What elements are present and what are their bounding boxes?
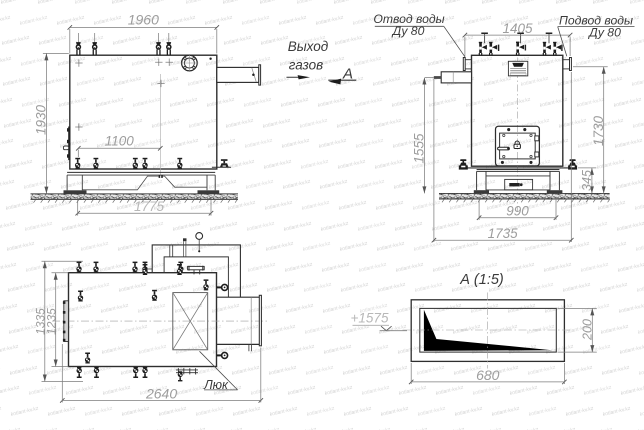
svg-text:kotlant-kv.kz: kotlant-kv.kz bbox=[263, 159, 292, 171]
svg-text:kotlant-kv.kz: kotlant-kv.kz bbox=[191, 241, 220, 253]
svg-text:kotlant-kv.kz: kotlant-kv.kz bbox=[225, 118, 254, 130]
svg-text:kotlant-kv.kz: kotlant-kv.kz bbox=[617, 262, 644, 274]
svg-text:kotlant-kv.kz: kotlant-kv.kz bbox=[594, 76, 623, 88]
svg-text:kotlant-kv.kz: kotlant-kv.kz bbox=[249, 344, 278, 356]
svg-text:kotlant-kv.kz: kotlant-kv.kz bbox=[518, 0, 547, 6]
svg-text:kotlant-kv.kz: kotlant-kv.kz bbox=[333, 0, 362, 6]
svg-text:kotlant-kv.kz: kotlant-kv.kz bbox=[506, 262, 535, 274]
svg-text:kotlant-kv.kz: kotlant-kv.kz bbox=[169, 97, 198, 109]
svg-text:kotlant-kv.kz: kotlant-kv.kz bbox=[300, 159, 329, 171]
svg-text:kotlant-kv.kz: kotlant-kv.kz bbox=[546, 385, 575, 397]
svg-text:kotlant-kv.kz: kotlant-kv.kz bbox=[491, 406, 520, 418]
svg-text:kotlant-kv.kz: kotlant-kv.kz bbox=[410, 118, 439, 130]
svg-text:kotlant-kv.kz: kotlant-kv.kz bbox=[260, 35, 289, 47]
svg-text:kotlant-kv.kz: kotlant-kv.kz bbox=[228, 241, 257, 253]
svg-text:kotlant-kv.kz: kotlant-kv.kz bbox=[187, 76, 216, 88]
svg-text:1930: 1930 bbox=[34, 104, 49, 135]
svg-text:kotlant-kv.kz: kotlant-kv.kz bbox=[520, 76, 549, 88]
svg-text:kotlant-kv.kz: kotlant-kv.kz bbox=[0, 138, 15, 150]
svg-text:kotlant-kv.kz: kotlant-kv.kz bbox=[353, 56, 382, 68]
svg-text:kotlant-kv.kz: kotlant-kv.kz bbox=[636, 282, 644, 294]
svg-text:kotlant-kv.kz: kotlant-kv.kz bbox=[113, 76, 142, 88]
svg-text:kotlant-kv.kz: kotlant-kv.kz bbox=[0, 97, 14, 109]
svg-text:kotlant-kv.kz: kotlant-kv.kz bbox=[268, 365, 297, 377]
svg-text:kotlant-kv.kz: kotlant-kv.kz bbox=[242, 56, 271, 68]
svg-text:kotlant-kv.kz: kotlant-kv.kz bbox=[285, 303, 314, 315]
svg-text:kotlant-kv.kz: kotlant-kv.kz bbox=[0, 344, 20, 356]
svg-text:kotlant-kv.kz: kotlant-kv.kz bbox=[243, 97, 272, 109]
svg-text:kotlant-kv.kz: kotlant-kv.kz bbox=[315, 15, 344, 27]
svg-text:kotlant-kv.kz: kotlant-kv.kz bbox=[299, 118, 328, 130]
svg-text:kotlant-kv.kz: kotlant-kv.kz bbox=[24, 221, 53, 233]
svg-text:kotlant-kv.kz: kotlant-kv.kz bbox=[619, 344, 644, 356]
svg-text:kotlant-kv.kz: kotlant-kv.kz bbox=[281, 138, 310, 150]
svg-text:kotlant-kv.kz: kotlant-kv.kz bbox=[284, 262, 313, 274]
svg-text:kotlant-kv.kz: kotlant-kv.kz bbox=[287, 385, 316, 397]
svg-text:kotlant-kv.kz: kotlant-kv.kz bbox=[214, 427, 243, 430]
svg-text:kotlant-kv.kz: kotlant-kv.kz bbox=[638, 365, 644, 377]
svg-text:kotlant-kv.kz: kotlant-kv.kz bbox=[0, 406, 3, 418]
svg-text:kotlant-kv.kz: kotlant-kv.kz bbox=[399, 427, 428, 430]
svg-text:kotlant-kv.kz: kotlant-kv.kz bbox=[5, 200, 34, 212]
svg-text:kotlant-kv.kz: kotlant-kv.kz bbox=[339, 241, 368, 253]
svg-text:kotlant-kv.kz: kotlant-kv.kz bbox=[58, 97, 87, 109]
svg-text:kotlant-kv.kz: kotlant-kv.kz bbox=[248, 303, 277, 315]
svg-text:kotlant-kv.kz: kotlant-kv.kz bbox=[305, 365, 334, 377]
svg-text:kotlant-kv.kz: kotlant-kv.kz bbox=[227, 200, 256, 212]
svg-text:kotlant-kv.kz: kotlant-kv.kz bbox=[209, 221, 238, 233]
svg-text:kotlant-kv.kz: kotlant-kv.kz bbox=[430, 179, 459, 191]
svg-text:kotlant-kv.kz: kotlant-kv.kz bbox=[361, 385, 390, 397]
svg-text:kotlant-kv.kz: kotlant-kv.kz bbox=[190, 200, 219, 212]
svg-text:kotlant-kv.kz: kotlant-kv.kz bbox=[37, 0, 66, 6]
svg-text:kotlant-kv.kz: kotlant-kv.kz bbox=[61, 221, 90, 233]
svg-text:kotlant-kv.kz: kotlant-kv.kz bbox=[565, 406, 594, 418]
svg-text:200: 200 bbox=[581, 319, 595, 341]
svg-text:kotlant-kv.kz: kotlant-kv.kz bbox=[465, 97, 494, 109]
svg-text:kotlant-kv.kz: kotlant-kv.kz bbox=[150, 76, 179, 88]
svg-text:kotlant-kv.kz: kotlant-kv.kz bbox=[60, 179, 89, 191]
svg-text:kotlant-kv.kz: kotlant-kv.kz bbox=[502, 97, 531, 109]
svg-text:А: А bbox=[342, 66, 353, 83]
svg-text:kotlant-kv.kz: kotlant-kv.kz bbox=[323, 344, 352, 356]
svg-text:kotlant-kv.kz: kotlant-kv.kz bbox=[22, 138, 51, 150]
svg-text:kotlant-kv.kz: kotlant-kv.kz bbox=[343, 406, 372, 418]
svg-text:kotlant-kv.kz: kotlant-kv.kz bbox=[98, 221, 127, 233]
svg-text:kotlant-kv.kz: kotlant-kv.kz bbox=[362, 427, 391, 430]
svg-text:kotlant-kv.kz: kotlant-kv.kz bbox=[95, 97, 124, 109]
svg-text:kotlant-kv.kz: kotlant-kv.kz bbox=[600, 324, 629, 336]
svg-text:kotlant-kv.kz: kotlant-kv.kz bbox=[158, 406, 187, 418]
svg-text:kotlant-kv.kz: kotlant-kv.kz bbox=[483, 76, 512, 88]
svg-text:kotlant-kv.kz: kotlant-kv.kz bbox=[318, 138, 347, 150]
svg-text:kotlant-kv.kz: kotlant-kv.kz bbox=[0, 179, 16, 191]
svg-text:kotlant-kv.kz: kotlant-kv.kz bbox=[20, 56, 49, 68]
svg-text:kotlant-kv.kz: kotlant-kv.kz bbox=[635, 241, 644, 253]
svg-text:kotlant-kv.kz: kotlant-kv.kz bbox=[80, 241, 109, 253]
svg-text:kotlant-kv.kz: kotlant-kv.kz bbox=[336, 118, 365, 130]
svg-text:kotlant-kv.kz: kotlant-kv.kz bbox=[601, 365, 630, 377]
svg-text:680: 680 bbox=[476, 367, 500, 383]
svg-text:kotlant-kv.kz: kotlant-kv.kz bbox=[6, 241, 35, 253]
svg-text:kotlant-kv.kz: kotlant-kv.kz bbox=[135, 221, 164, 233]
svg-text:kotlant-kv.kz: kotlant-kv.kz bbox=[0, 385, 21, 397]
svg-text:1960: 1960 bbox=[128, 12, 159, 28]
svg-text:kotlant-kv.kz: kotlant-kv.kz bbox=[288, 427, 317, 430]
svg-text:kotlant-kv.kz: kotlant-kv.kz bbox=[244, 138, 273, 150]
svg-text:1775: 1775 bbox=[134, 199, 165, 214]
svg-text:kotlant-kv.kz: kotlant-kv.kz bbox=[356, 179, 385, 191]
svg-text:kotlant-kv.kz: kotlant-kv.kz bbox=[618, 303, 644, 315]
svg-text:А (1:5): А (1:5) bbox=[459, 272, 504, 288]
svg-text:kotlant-kv.kz: kotlant-kv.kz bbox=[358, 262, 387, 274]
svg-text:kotlant-kv.kz: kotlant-kv.kz bbox=[487, 241, 516, 253]
svg-text:kotlant-kv.kz: kotlant-kv.kz bbox=[466, 138, 495, 150]
svg-text:kotlant-kv.kz: kotlant-kv.kz bbox=[334, 35, 363, 47]
svg-text:kotlant-kv.kz: kotlant-kv.kz bbox=[602, 406, 631, 418]
svg-text:kotlant-kv.kz: kotlant-kv.kz bbox=[76, 76, 105, 88]
svg-text:kotlant-kv.kz: kotlant-kv.kz bbox=[637, 324, 644, 336]
svg-text:kotlant-kv.kz: kotlant-kv.kz bbox=[282, 179, 311, 191]
svg-text:kotlant-kv.kz: kotlant-kv.kz bbox=[155, 282, 184, 294]
svg-text:kotlant-kv.kz: kotlant-kv.kz bbox=[134, 179, 163, 191]
svg-text:1405: 1405 bbox=[502, 21, 533, 36]
svg-text:kotlant-kv.kz: kotlant-kv.kz bbox=[630, 35, 644, 47]
svg-text:kotlant-kv.kz: kotlant-kv.kz bbox=[154, 241, 183, 253]
svg-text:kotlant-kv.kz: kotlant-kv.kz bbox=[211, 303, 240, 315]
svg-text:kotlant-kv.kz: kotlant-kv.kz bbox=[0, 262, 18, 274]
svg-text:kotlant-kv.kz: kotlant-kv.kz bbox=[121, 406, 150, 418]
svg-text:kotlant-kv.kz: kotlant-kv.kz bbox=[0, 0, 29, 6]
svg-text:kotlant-kv.kz: kotlant-kv.kz bbox=[394, 221, 423, 233]
svg-text:kotlant-kv.kz: kotlant-kv.kz bbox=[43, 241, 72, 253]
svg-text:kotlant-kv.kz: kotlant-kv.kz bbox=[473, 427, 502, 430]
svg-text:kotlant-kv.kz: kotlant-kv.kz bbox=[230, 324, 259, 336]
svg-text:kotlant-kv.kz: kotlant-kv.kz bbox=[340, 282, 369, 294]
svg-text:kotlant-kv.kz: kotlant-kv.kz bbox=[172, 221, 201, 233]
svg-text:kotlant-kv.kz: kotlant-kv.kz bbox=[112, 35, 141, 47]
svg-text:kotlant-kv.kz: kotlant-kv.kz bbox=[100, 303, 129, 315]
svg-text:kotlant-kv.kz: kotlant-kv.kz bbox=[616, 221, 644, 233]
svg-text:kotlant-kv.kz: kotlant-kv.kz bbox=[436, 427, 465, 430]
svg-text:kotlant-kv.kz: kotlant-kv.kz bbox=[42, 200, 71, 212]
svg-text:газов: газов bbox=[289, 58, 323, 73]
svg-text:kotlant-kv.kz: kotlant-kv.kz bbox=[557, 76, 586, 88]
svg-text:kotlant-kv.kz: kotlant-kv.kz bbox=[596, 159, 625, 171]
svg-text:kotlant-kv.kz: kotlant-kv.kz bbox=[631, 76, 644, 88]
svg-text:kotlant-kv.kz: kotlant-kv.kz bbox=[111, 0, 140, 6]
svg-text:kotlant-kv.kz: kotlant-kv.kz bbox=[325, 427, 354, 430]
svg-text:kotlant-kv.kz: kotlant-kv.kz bbox=[151, 118, 180, 130]
svg-text:kotlant-kv.kz: kotlant-kv.kz bbox=[373, 118, 402, 130]
svg-text:kotlant-kv.kz: kotlant-kv.kz bbox=[0, 365, 2, 377]
svg-text:kotlant-kv.kz: kotlant-kv.kz bbox=[250, 385, 279, 397]
svg-text:1100: 1100 bbox=[105, 134, 135, 149]
svg-text:kotlant-kv.kz: kotlant-kv.kz bbox=[374, 159, 403, 171]
svg-text:kotlant-kv.kz: kotlant-kv.kz bbox=[28, 385, 57, 397]
svg-text:kotlant-kv.kz: kotlant-kv.kz bbox=[118, 282, 147, 294]
svg-text:kotlant-kv.kz: kotlant-kv.kz bbox=[391, 97, 420, 109]
svg-text:kotlant-kv.kz: kotlant-kv.kz bbox=[241, 15, 270, 27]
svg-text:kotlant-kv.kz: kotlant-kv.kz bbox=[278, 15, 307, 27]
svg-text:kotlant-kv.kz: kotlant-kv.kz bbox=[156, 324, 185, 336]
svg-text:kotlant-kv.kz: kotlant-kv.kz bbox=[4, 159, 33, 171]
svg-text:kotlant-kv.kz: kotlant-kv.kz bbox=[149, 35, 178, 47]
svg-text:kotlant-kv.kz: kotlant-kv.kz bbox=[222, 0, 251, 6]
svg-text:kotlant-kv.kz: kotlant-kv.kz bbox=[47, 406, 76, 418]
svg-text:kotlant-kv.kz: kotlant-kv.kz bbox=[428, 97, 457, 109]
svg-text:kotlant-kv.kz: kotlant-kv.kz bbox=[360, 344, 389, 356]
svg-text:kotlant-kv.kz: kotlant-kv.kz bbox=[39, 76, 68, 88]
svg-text:kotlant-kv.kz: kotlant-kv.kz bbox=[319, 179, 348, 191]
svg-text:kotlant-kv.kz: kotlant-kv.kz bbox=[432, 262, 461, 274]
svg-text:kotlant-kv.kz: kotlant-kv.kz bbox=[355, 138, 384, 150]
svg-text:kotlant-kv.kz: kotlant-kv.kz bbox=[509, 385, 538, 397]
svg-text:kotlant-kv.kz: kotlant-kv.kz bbox=[599, 282, 628, 294]
svg-text:kotlant-kv.kz: kotlant-kv.kz bbox=[450, 241, 479, 253]
svg-text:kotlant-kv.kz: kotlant-kv.kz bbox=[463, 15, 492, 27]
svg-text:kotlant-kv.kz: kotlant-kv.kz bbox=[226, 159, 255, 171]
svg-text:kotlant-kv.kz: kotlant-kv.kz bbox=[41, 159, 70, 171]
svg-text:kotlant-kv.kz: kotlant-kv.kz bbox=[393, 179, 422, 191]
svg-text:kotlant-kv.kz: kotlant-kv.kz bbox=[266, 282, 295, 294]
svg-text:kotlant-kv.kz: kotlant-kv.kz bbox=[633, 159, 644, 171]
svg-text:kotlant-kv.kz: kotlant-kv.kz bbox=[56, 15, 85, 27]
svg-text:kotlant-kv.kz: kotlant-kv.kz bbox=[74, 0, 103, 6]
svg-text:kotlant-kv.kz: kotlant-kv.kz bbox=[302, 241, 331, 253]
svg-text:kotlant-kv.kz: kotlant-kv.kz bbox=[119, 324, 148, 336]
svg-text:kotlant-kv.kz: kotlant-kv.kz bbox=[231, 365, 260, 377]
svg-text:kotlant-kv.kz: kotlant-kv.kz bbox=[414, 282, 443, 294]
svg-text:kotlant-kv.kz: kotlant-kv.kz bbox=[303, 282, 332, 294]
svg-text:kotlant-kv.kz: kotlant-kv.kz bbox=[3, 118, 32, 130]
svg-text:kotlant-kv.kz: kotlant-kv.kz bbox=[395, 262, 424, 274]
svg-text:kotlant-kv.kz: kotlant-kv.kz bbox=[527, 365, 556, 377]
svg-text:kotlant-kv.kz: kotlant-kv.kz bbox=[545, 344, 574, 356]
svg-text:kotlant-kv.kz: kotlant-kv.kz bbox=[444, 0, 473, 6]
svg-text:kotlant-kv.kz: kotlant-kv.kz bbox=[454, 406, 483, 418]
svg-text:kotlant-kv.kz: kotlant-kv.kz bbox=[102, 385, 131, 397]
svg-text:kotlant-kv.kz: kotlant-kv.kz bbox=[629, 0, 644, 6]
svg-text:1555: 1555 bbox=[412, 133, 427, 164]
svg-text:kotlant-kv.kz: kotlant-kv.kz bbox=[170, 138, 199, 150]
svg-text:kotlant-kv.kz: kotlant-kv.kz bbox=[283, 221, 312, 233]
svg-text:345: 345 bbox=[580, 170, 594, 191]
svg-text:kotlant-kv.kz: kotlant-kv.kz bbox=[398, 385, 427, 397]
svg-text:kotlant-kv.kz: kotlant-kv.kz bbox=[101, 344, 130, 356]
svg-text:kotlant-kv.kz: kotlant-kv.kz bbox=[304, 324, 333, 336]
svg-text:kotlant-kv.kz: kotlant-kv.kz bbox=[251, 427, 280, 430]
svg-text:kotlant-kv.kz: kotlant-kv.kz bbox=[77, 118, 106, 130]
svg-text:kotlant-kv.kz: kotlant-kv.kz bbox=[229, 282, 258, 294]
svg-text:kotlant-kv.kz: kotlant-kv.kz bbox=[614, 138, 643, 150]
svg-text:kotlant-kv.kz: kotlant-kv.kz bbox=[206, 97, 235, 109]
svg-text:kotlant-kv.kz: kotlant-kv.kz bbox=[580, 262, 609, 274]
svg-text:kotlant-kv.kz: kotlant-kv.kz bbox=[413, 241, 442, 253]
svg-text:kotlant-kv.kz: kotlant-kv.kz bbox=[431, 221, 460, 233]
svg-text:kotlant-kv.kz: kotlant-kv.kz bbox=[114, 118, 143, 130]
svg-text:kotlant-kv.kz: kotlant-kv.kz bbox=[337, 159, 366, 171]
svg-text:kotlant-kv.kz: kotlant-kv.kz bbox=[528, 406, 557, 418]
svg-text:kotlant-kv.kz: kotlant-kv.kz bbox=[427, 56, 456, 68]
svg-text:+1575: +1575 bbox=[351, 310, 389, 325]
svg-text:kotlant-kv.kz: kotlant-kv.kz bbox=[524, 241, 553, 253]
svg-text:kotlant-kv.kz: kotlant-kv.kz bbox=[2, 76, 31, 88]
svg-text:kotlant-kv.kz: kotlant-kv.kz bbox=[232, 406, 261, 418]
svg-text:kotlant-kv.kz: kotlant-kv.kz bbox=[357, 221, 386, 233]
svg-text:kotlant-kv.kz: kotlant-kv.kz bbox=[317, 97, 346, 109]
svg-text:kotlant-kv.kz: kotlant-kv.kz bbox=[19, 15, 48, 27]
svg-text:kotlant-kv.kz: kotlant-kv.kz bbox=[94, 56, 123, 68]
svg-text:kotlant-kv.kz: kotlant-kv.kz bbox=[320, 221, 349, 233]
svg-text:kotlant-kv.kz: kotlant-kv.kz bbox=[582, 344, 611, 356]
svg-text:kotlant-kv.kz: kotlant-kv.kz bbox=[280, 97, 309, 109]
svg-text:kotlant-kv.kz: kotlant-kv.kz bbox=[372, 76, 401, 88]
svg-text:kotlant-kv.kz: kotlant-kv.kz bbox=[472, 385, 501, 397]
svg-text:kotlant-kv.kz: kotlant-kv.kz bbox=[103, 427, 132, 430]
svg-text:kotlant-kv.kz: kotlant-kv.kz bbox=[264, 200, 293, 212]
svg-text:kotlant-kv.kz: kotlant-kv.kz bbox=[543, 262, 572, 274]
svg-text:kotlant-kv.kz: kotlant-kv.kz bbox=[321, 262, 350, 274]
svg-text:kotlant-kv.kz: kotlant-kv.kz bbox=[541, 179, 570, 191]
svg-text:kotlant-kv.kz: kotlant-kv.kz bbox=[564, 365, 593, 377]
svg-text:kotlant-kv.kz: kotlant-kv.kz bbox=[84, 406, 113, 418]
svg-text:kotlant-kv.kz: kotlant-kv.kz bbox=[621, 427, 644, 430]
svg-text:kotlant-kv.kz: kotlant-kv.kz bbox=[584, 427, 613, 430]
svg-text:kotlant-kv.kz: kotlant-kv.kz bbox=[176, 385, 205, 397]
svg-text:kotlant-kv.kz: kotlant-kv.kz bbox=[140, 427, 169, 430]
svg-text:kotlant-kv.kz: kotlant-kv.kz bbox=[267, 324, 296, 336]
svg-text:kotlant-kv.kz: kotlant-kv.kz bbox=[481, 0, 510, 6]
svg-text:Ду 80: Ду 80 bbox=[587, 26, 621, 40]
svg-text:kotlant-kv.kz: kotlant-kv.kz bbox=[322, 303, 351, 315]
svg-text:kotlant-kv.kz: kotlant-kv.kz bbox=[0, 427, 22, 430]
svg-text:kotlant-kv.kz: kotlant-kv.kz bbox=[177, 427, 206, 430]
svg-text:1235: 1235 bbox=[45, 308, 59, 335]
svg-text:kotlant-kv.kz: kotlant-kv.kz bbox=[525, 282, 554, 294]
svg-text:kotlant-kv.kz: kotlant-kv.kz bbox=[205, 56, 234, 68]
svg-text:kotlant-kv.kz: kotlant-kv.kz bbox=[583, 385, 612, 397]
svg-text:kotlant-kv.kz: kotlant-kv.kz bbox=[555, 0, 584, 6]
svg-text:kotlant-kv.kz: kotlant-kv.kz bbox=[66, 427, 95, 430]
svg-text:kotlant-kv.kz: kotlant-kv.kz bbox=[306, 406, 335, 418]
svg-text:kotlant-kv.kz: kotlant-kv.kz bbox=[208, 179, 237, 191]
svg-text:kotlant-kv.kz: kotlant-kv.kz bbox=[561, 241, 590, 253]
svg-text:kotlant-kv.kz: kotlant-kv.kz bbox=[131, 56, 160, 68]
svg-text:kotlant-kv.kz: kotlant-kv.kz bbox=[7, 282, 36, 294]
svg-text:kotlant-kv.kz: kotlant-kv.kz bbox=[27, 344, 56, 356]
svg-text:kotlant-kv.kz: kotlant-kv.kz bbox=[354, 97, 383, 109]
svg-text:kotlant-kv.kz: kotlant-kv.kz bbox=[467, 179, 496, 191]
svg-text:kotlant-kv.kz: kotlant-kv.kz bbox=[261, 76, 290, 88]
svg-text:kotlant-kv.kz: kotlant-kv.kz bbox=[1, 35, 30, 47]
svg-text:kotlant-kv.kz: kotlant-kv.kz bbox=[195, 406, 224, 418]
svg-text:kotlant-kv.kz: kotlant-kv.kz bbox=[171, 179, 200, 191]
svg-text:kotlant-kv.kz: kotlant-kv.kz bbox=[639, 406, 644, 418]
svg-text:kotlant-kv.kz: kotlant-kv.kz bbox=[9, 365, 38, 377]
svg-text:kotlant-kv.kz: kotlant-kv.kz bbox=[65, 385, 94, 397]
svg-text:kotlant-kv.kz: kotlant-kv.kz bbox=[82, 324, 111, 336]
svg-text:kotlant-kv.kz: kotlant-kv.kz bbox=[464, 56, 493, 68]
svg-text:kotlant-kv.kz: kotlant-kv.kz bbox=[245, 179, 274, 191]
svg-text:kotlant-kv.kz: kotlant-kv.kz bbox=[269, 406, 298, 418]
svg-text:kotlant-kv.kz: kotlant-kv.kz bbox=[324, 385, 353, 397]
svg-text:kotlant-kv.kz: kotlant-kv.kz bbox=[575, 56, 604, 68]
svg-text:kotlant-kv.kz: kotlant-kv.kz bbox=[167, 15, 196, 27]
svg-text:kotlant-kv.kz: kotlant-kv.kz bbox=[138, 344, 167, 356]
svg-text:kotlant-kv.kz: kotlant-kv.kz bbox=[117, 241, 146, 253]
svg-text:kotlant-kv.kz: kotlant-kv.kz bbox=[612, 56, 641, 68]
svg-text:kotlant-kv.kz: kotlant-kv.kz bbox=[375, 200, 404, 212]
svg-text:kotlant-kv.kz: kotlant-kv.kz bbox=[542, 221, 571, 233]
svg-text:kotlant-kv.kz: kotlant-kv.kz bbox=[380, 406, 409, 418]
svg-text:kotlant-kv.kz: kotlant-kv.kz bbox=[207, 138, 236, 150]
svg-text:kotlant-kv.kz: kotlant-kv.kz bbox=[576, 97, 605, 109]
svg-text:kotlant-kv.kz: kotlant-kv.kz bbox=[93, 15, 122, 27]
svg-text:kotlant-kv.kz: kotlant-kv.kz bbox=[246, 221, 275, 233]
svg-text:kotlant-kv.kz: kotlant-kv.kz bbox=[301, 200, 330, 212]
svg-text:kotlant-kv.kz: kotlant-kv.kz bbox=[376, 241, 405, 253]
svg-text:kotlant-kv.kz: kotlant-kv.kz bbox=[0, 221, 17, 233]
svg-text:kotlant-kv.kz: kotlant-kv.kz bbox=[174, 303, 203, 315]
svg-text:kotlant-kv.kz: kotlant-kv.kz bbox=[29, 427, 58, 430]
svg-text:kotlant-kv.kz: kotlant-kv.kz bbox=[417, 406, 446, 418]
svg-text:kotlant-kv.kz: kotlant-kv.kz bbox=[539, 97, 568, 109]
svg-text:kotlant-kv.kz: kotlant-kv.kz bbox=[97, 179, 126, 191]
svg-text:kotlant-kv.kz: kotlant-kv.kz bbox=[540, 138, 569, 150]
svg-text:kotlant-kv.kz: kotlant-kv.kz bbox=[435, 385, 464, 397]
svg-text:kotlant-kv.kz: kotlant-kv.kz bbox=[547, 427, 576, 430]
svg-text:kotlant-kv.kz: kotlant-kv.kz bbox=[560, 200, 589, 212]
svg-text:kotlant-kv.kz: kotlant-kv.kz bbox=[286, 344, 315, 356]
svg-text:kotlant-kv.kz: kotlant-kv.kz bbox=[407, 0, 436, 6]
svg-text:kotlant-kv.kz: kotlant-kv.kz bbox=[613, 97, 642, 109]
svg-text:kotlant-kv.kz: kotlant-kv.kz bbox=[132, 97, 161, 109]
svg-text:kotlant-kv.kz: kotlant-kv.kz bbox=[615, 179, 644, 191]
svg-text:kotlant-kv.kz: kotlant-kv.kz bbox=[0, 303, 19, 315]
svg-text:kotlant-kv.kz: kotlant-kv.kz bbox=[81, 282, 110, 294]
svg-text:kotlant-kv.kz: kotlant-kv.kz bbox=[57, 56, 86, 68]
svg-text:kotlant-kv.kz: kotlant-kv.kz bbox=[379, 365, 408, 377]
svg-text:kotlant-kv.kz: kotlant-kv.kz bbox=[296, 0, 325, 6]
svg-text:kotlant-kv.kz: kotlant-kv.kz bbox=[247, 262, 276, 274]
svg-text:kotlant-kv.kz: kotlant-kv.kz bbox=[10, 406, 39, 418]
svg-text:kotlant-kv.kz: kotlant-kv.kz bbox=[484, 118, 513, 130]
svg-text:kotlant-kv.kz: kotlant-kv.kz bbox=[562, 282, 591, 294]
svg-text:kotlant-kv.kz: kotlant-kv.kz bbox=[598, 241, 627, 253]
svg-text:kotlant-kv.kz: kotlant-kv.kz bbox=[377, 282, 406, 294]
svg-text:kotlant-kv.kz: kotlant-kv.kz bbox=[416, 365, 445, 377]
svg-text:kotlant-kv.kz: kotlant-kv.kz bbox=[592, 0, 621, 6]
svg-text:kotlant-kv.kz: kotlant-kv.kz bbox=[338, 200, 367, 212]
svg-text:kotlant-kv.kz: kotlant-kv.kz bbox=[79, 200, 108, 212]
svg-text:kotlant-kv.kz: kotlant-kv.kz bbox=[265, 241, 294, 253]
svg-text:2640: 2640 bbox=[145, 385, 177, 401]
svg-text:kotlant-kv.kz: kotlant-kv.kz bbox=[0, 56, 13, 68]
svg-text:kotlant-kv.kz: kotlant-kv.kz bbox=[597, 200, 626, 212]
svg-text:kotlant-kv.kz: kotlant-kv.kz bbox=[342, 365, 371, 377]
svg-text:kotlant-kv.kz: kotlant-kv.kz bbox=[262, 118, 291, 130]
svg-text:kotlant-kv.kz: kotlant-kv.kz bbox=[579, 221, 608, 233]
svg-text:kotlant-kv.kz: kotlant-kv.kz bbox=[521, 118, 550, 130]
svg-text:kotlant-kv.kz: kotlant-kv.kz bbox=[412, 200, 441, 212]
svg-text:1730: 1730 bbox=[591, 115, 606, 146]
svg-text:990: 990 bbox=[506, 204, 529, 219]
svg-text:kotlant-kv.kz: kotlant-kv.kz bbox=[632, 118, 644, 130]
svg-text:kotlant-kv.kz: kotlant-kv.kz bbox=[186, 35, 215, 47]
svg-text:kotlant-kv.kz: kotlant-kv.kz bbox=[223, 35, 252, 47]
svg-text:kotlant-kv.kz: kotlant-kv.kz bbox=[0, 15, 12, 27]
